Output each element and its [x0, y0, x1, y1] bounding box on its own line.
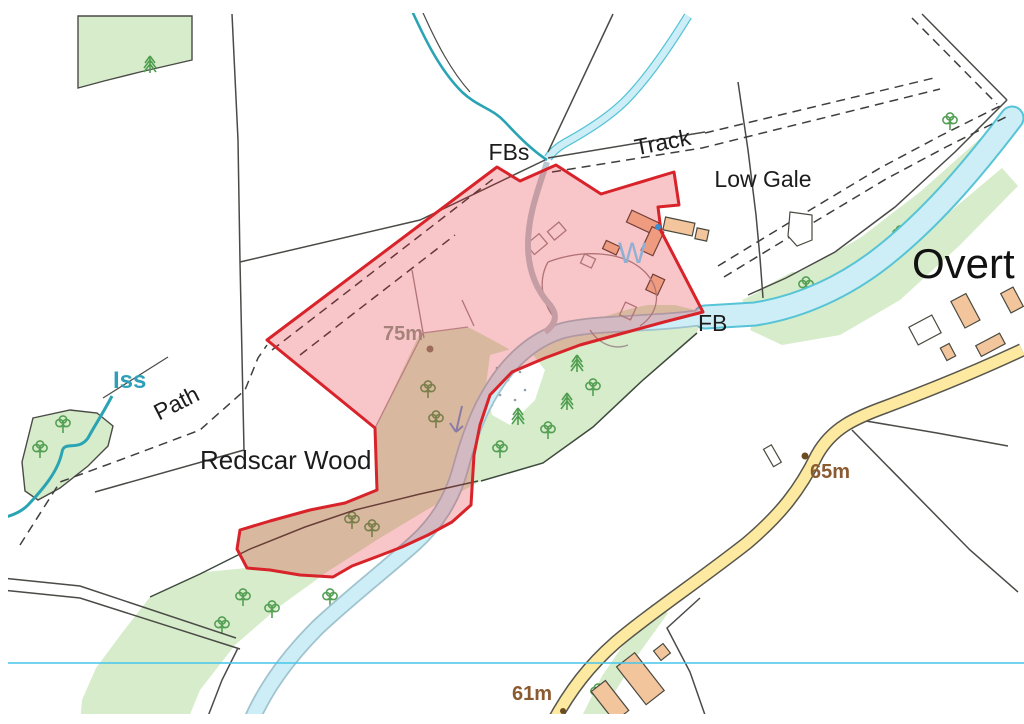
label-well: W — [618, 237, 647, 270]
label-redscar-wood: Redscar Wood — [200, 445, 372, 475]
spot-dot-61m — [560, 708, 566, 714]
label-low-gale: Low Gale — [714, 166, 811, 192]
spot-height-61m: 61m — [512, 683, 552, 705]
label-iss: Iss — [113, 367, 146, 394]
spot-dot-65m — [802, 453, 809, 460]
map-container[interactable]: FBs Track Low Gale Overt Iss Path Redsca… — [0, 0, 1024, 724]
well-dot — [655, 224, 661, 230]
spot-height-75m: 75m — [383, 323, 423, 345]
label-overton: Overt — [912, 240, 1015, 287]
label-fbs: FBs — [489, 139, 530, 165]
spot-height-65m: 65m — [810, 461, 850, 483]
spot-dot-75m — [427, 346, 434, 353]
map-canvas: FBs Track Low Gale Overt Iss Path Redsca… — [0, 0, 1024, 724]
label-fb: FB — [698, 310, 727, 336]
